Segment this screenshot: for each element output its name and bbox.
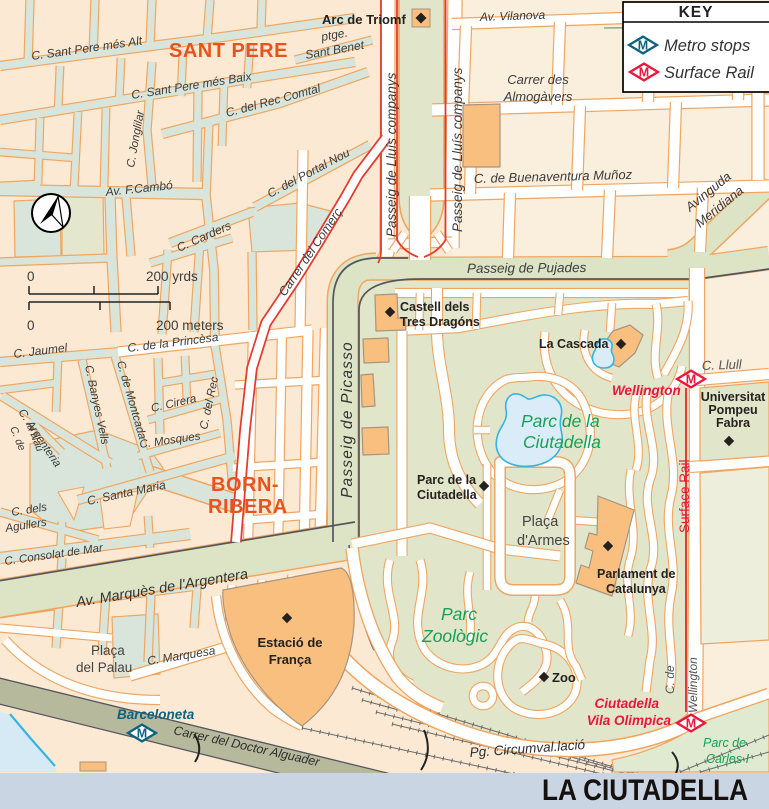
svg-text:KEY: KEY [679,4,714,21]
svg-text:Castell dels: Castell dels [400,300,470,314]
svg-text:LA CIUTADELLA: LA CIUTADELLA [542,774,748,807]
svg-text:Av. Vilanova: Av. Vilanova [479,8,546,24]
svg-text:M: M [638,38,648,52]
svg-text:Almogàvers: Almogàvers [503,89,573,104]
svg-text:França: França [269,652,312,667]
svg-text:Passeig de Picasso: Passeig de Picasso [339,341,356,498]
svg-text:La Cascada: La Cascada [539,337,610,351]
svg-text:Fabra: Fabra [716,416,751,430]
svg-text:Plaça: Plaça [91,643,125,658]
svg-text:Wellington: Wellington [686,657,700,713]
svg-text:Zoo: Zoo [552,670,576,685]
svg-text:Passeig de Lluís companys: Passeig de Lluís companys [450,67,465,232]
svg-text:Metro stops: Metro stops [664,37,750,55]
svg-text:Vila Olimpica: Vila Olimpica [587,713,672,728]
svg-text:SANT PERE: SANT PERE [169,40,288,62]
svg-text:del Palau: del Palau [76,660,132,675]
svg-text:Ciutadella: Ciutadella [594,696,659,711]
svg-text:Passeig de Pujades: Passeig de Pujades [467,260,587,276]
svg-text:0: 0 [27,318,35,333]
svg-text:Parc de: Parc de [703,736,746,750]
svg-text:Ciutadella: Ciutadella [417,488,478,502]
svg-text:Surface Rail: Surface Rail [677,459,692,533]
svg-text:200 yrds: 200 yrds [146,269,198,284]
svg-text:Parc de la: Parc de la [521,411,600,431]
svg-text:Surface Rail: Surface Rail [664,64,755,82]
svg-text:Arc de Triomf: Arc de Triomf [322,12,406,27]
svg-text:M: M [639,65,649,79]
svg-text:Parlament de: Parlament de [597,567,676,581]
svg-text:Parc: Parc [441,604,477,624]
svg-text:C. de: C. de [663,665,677,694]
svg-text:Carles I: Carles I [706,752,750,766]
svg-text:Pompeu: Pompeu [708,403,757,417]
svg-text:Zoològic: Zoològic [421,626,488,646]
svg-text:C. Llull: C. Llull [702,357,743,373]
svg-text:Ciutadella: Ciutadella [523,432,601,452]
svg-text:M: M [686,716,696,730]
svg-text:Parc de la: Parc de la [417,473,477,487]
svg-text:BORN-: BORN- [211,474,279,496]
svg-text:Wellington: Wellington [612,383,681,398]
svg-text:M: M [137,726,147,740]
svg-text:d'Armes: d'Armes [517,533,570,549]
svg-text:Barceloneta: Barceloneta [117,707,195,722]
svg-text:Catalunya: Catalunya [606,582,667,596]
svg-text:0: 0 [27,269,35,284]
svg-text:Universitat: Universitat [701,390,766,404]
svg-text:Passeig de Lluís companys: Passeig de Lluís companys [384,72,399,237]
svg-text:Plaça: Plaça [522,514,559,530]
svg-text:Carrer des: Carrer des [507,72,569,87]
svg-text:200 meters: 200 meters [156,318,224,333]
svg-text:RIBERA: RIBERA [208,496,288,518]
svg-text:Estació de: Estació de [257,635,322,650]
svg-text:M: M [686,372,696,386]
svg-text:Tres Dragóns: Tres Dragóns [400,315,480,329]
